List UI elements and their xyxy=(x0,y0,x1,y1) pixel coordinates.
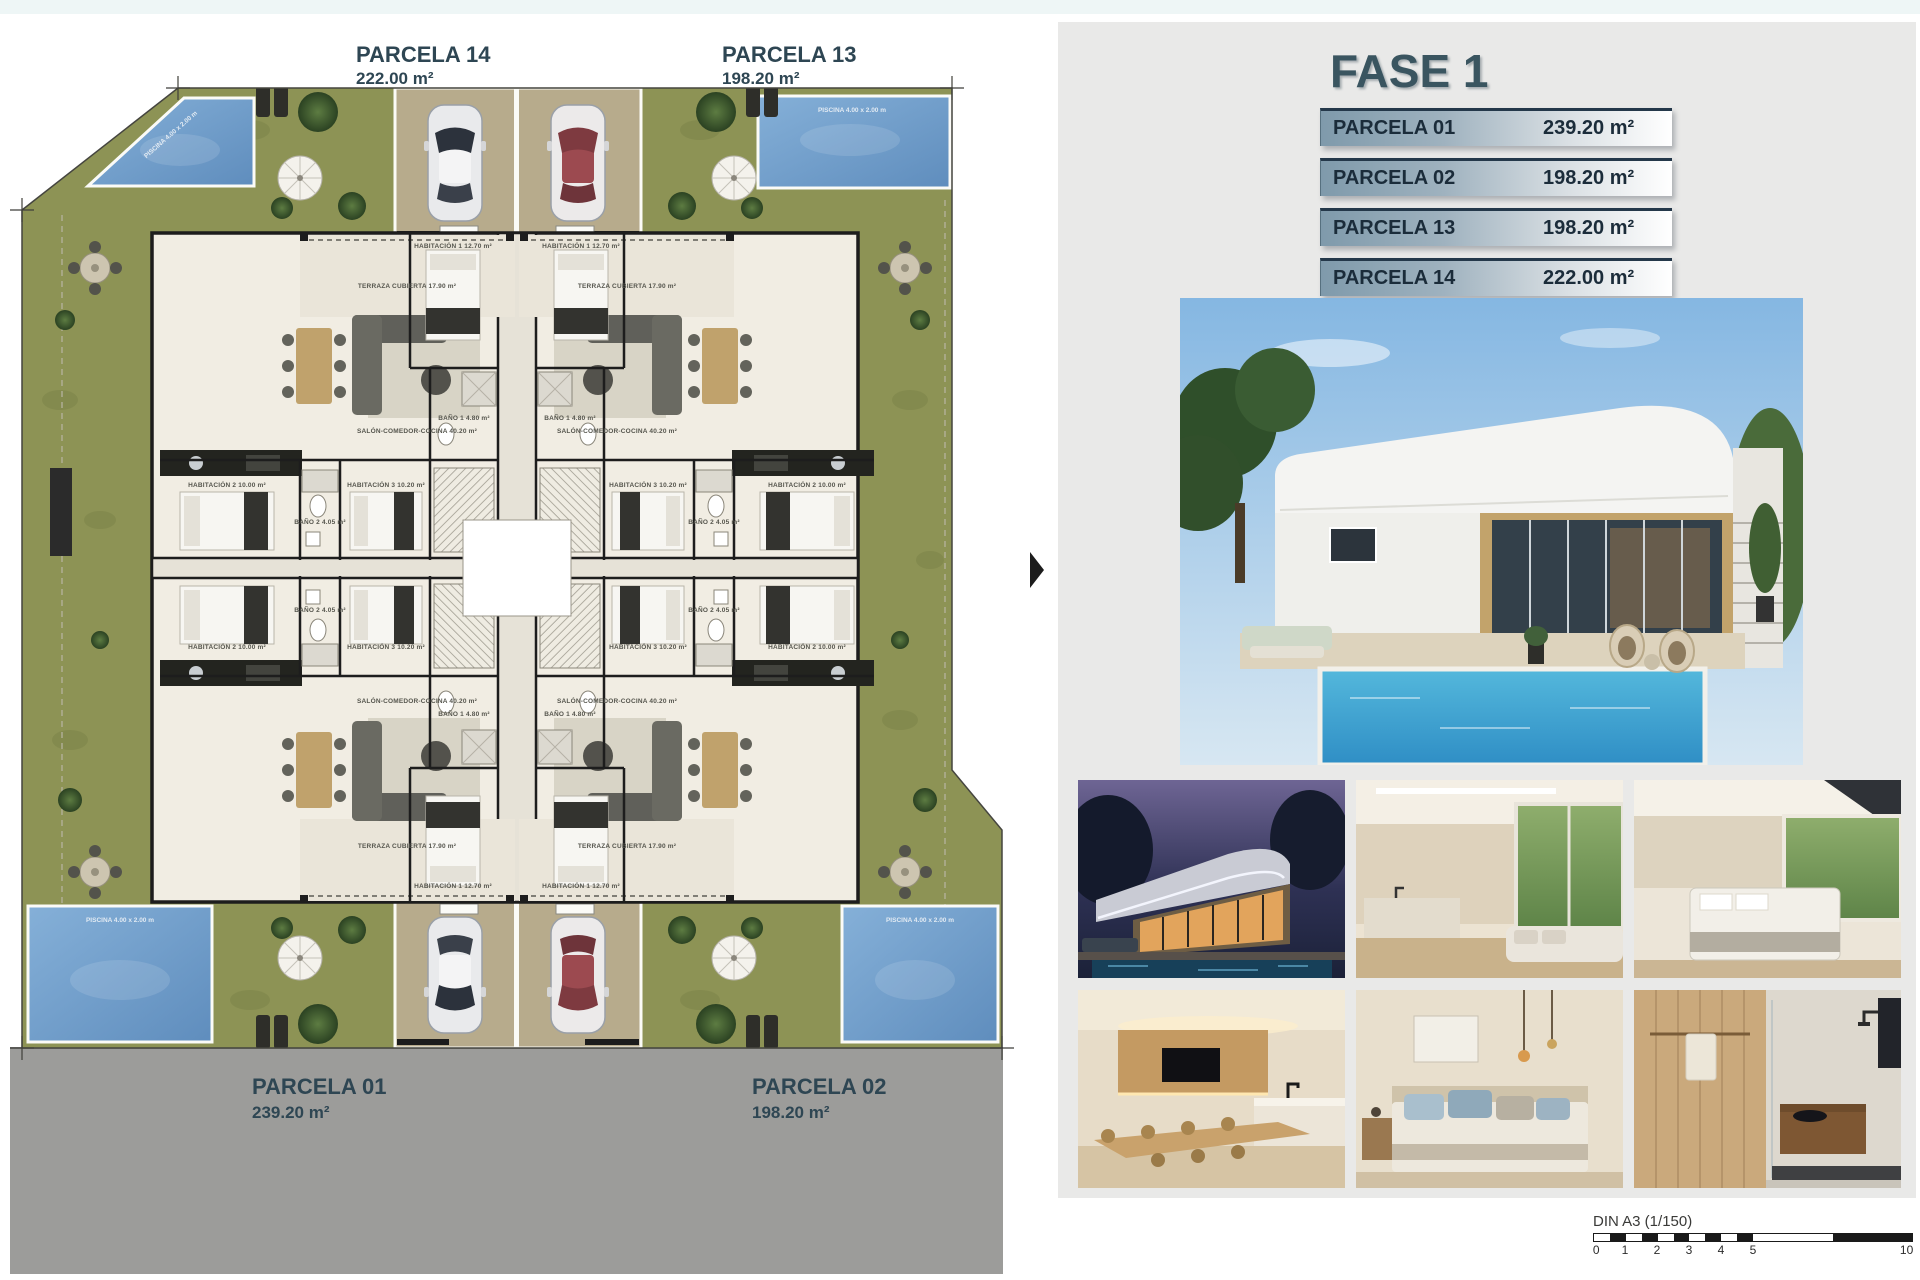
room-label: HABITACIÓN 3 10.20 m² xyxy=(609,642,687,651)
room-label: HABITACIÓN 1 12.70 m² xyxy=(542,241,620,250)
parasol xyxy=(278,156,322,200)
room-label: SALÓN-COMEDOR-COCINA 40.20 m² xyxy=(557,696,678,705)
row-value: 198.20 m² xyxy=(1543,167,1634,190)
central-lightwell xyxy=(463,520,571,616)
room-label: HABITACIÓN 1 12.70 m² xyxy=(414,881,492,890)
table-row: PARCELA 01 239.20 m² xyxy=(1320,108,1672,146)
table-row: PARCELA 02 198.20 m² xyxy=(1320,158,1672,196)
parcel-02-label: PARCELA 02 xyxy=(752,1074,886,1099)
room-label: BAÑO 2 4.05 m² xyxy=(294,605,346,614)
row-label: PARCELA 02 xyxy=(1333,167,1455,190)
room-label: BAÑO 1 4.80 m² xyxy=(544,413,596,422)
room-label: BAÑO 1 4.80 m² xyxy=(544,709,596,718)
room-label: BAÑO 2 4.05 m² xyxy=(688,605,740,614)
scale-tick: 2 xyxy=(1654,1243,1661,1257)
page-title: FASE 1 xyxy=(1330,44,1489,98)
room-label: TERRAZA CUBIERTA 17.90 m² xyxy=(358,843,457,850)
car-top-right xyxy=(547,105,609,221)
row-value: 222.00 m² xyxy=(1543,267,1634,290)
thumb-living-room xyxy=(1356,780,1623,978)
scale-tick: 4 xyxy=(1718,1243,1725,1257)
villa-exterior-photo xyxy=(1180,298,1803,765)
pool-label: PISCINA 4.00 x 2.00 m xyxy=(86,917,154,924)
row-label: PARCELA 13 xyxy=(1333,217,1455,240)
room-label: HABITACIÓN 3 10.20 m² xyxy=(609,480,687,489)
row-value: 198.20 m² xyxy=(1543,217,1634,240)
room-label: HABITACIÓN 2 10.00 m² xyxy=(768,480,846,489)
site-plan: PARCELA 14 222.00 m² PARCELA 13 198.20 m… xyxy=(0,0,1058,1280)
thumb-kitchen-dining xyxy=(1078,990,1345,1188)
row-value: 239.20 m² xyxy=(1543,117,1634,140)
scale-caption: DIN A3 (1/150) xyxy=(1593,1213,1913,1230)
room-label: BAÑO 2 4.05 m² xyxy=(294,517,346,526)
room-label: SALÓN-COMEDOR-COCINA 40.20 m² xyxy=(557,426,678,435)
scale-tick: 3 xyxy=(1686,1243,1693,1257)
site-plan-drawing: PARCELA 14 222.00 m² PARCELA 13 198.20 m… xyxy=(0,0,1058,1280)
parcel-02-area: 198.20 m² xyxy=(752,1103,830,1122)
room-label: HABITACIÓN 2 10.00 m² xyxy=(768,642,846,651)
thumb-night-exterior xyxy=(1078,780,1345,978)
car-bottom-left xyxy=(424,917,486,1033)
room-label: BAÑO 1 4.80 m² xyxy=(438,709,490,718)
scale-bar-graphic xyxy=(1593,1233,1913,1242)
room-label: HABITACIÓN 3 10.20 m² xyxy=(347,480,425,489)
parcel-table: PARCELA 01 239.20 m² PARCELA 02 198.20 m… xyxy=(1320,108,1672,308)
room-label: HABITACIÓN 2 10.00 m² xyxy=(188,480,266,489)
room-label: TERRAZA CUBIERTA 17.90 m² xyxy=(578,843,677,850)
utility-box xyxy=(50,468,72,556)
scale-tick: 0 xyxy=(1593,1243,1600,1257)
room-label: HABITACIÓN 1 12.70 m² xyxy=(542,881,620,890)
pool-label: PISCINA 4.00 x 2.00 m xyxy=(886,917,954,924)
room-label: HABITACIÓN 1 12.70 m² xyxy=(414,241,492,250)
parasol xyxy=(278,936,322,980)
car-top-left xyxy=(424,105,486,221)
room-label: TERRAZA CUBIERTA 17.90 m² xyxy=(358,283,457,290)
row-label: PARCELA 01 xyxy=(1333,117,1455,140)
scale-ticks: 0 1 2 3 4 5 10 xyxy=(1593,1243,1913,1259)
room-label: TERRAZA CUBIERTA 17.90 m² xyxy=(578,283,677,290)
thumb-bedroom-view xyxy=(1634,780,1901,978)
row-label: PARCELA 14 xyxy=(1333,267,1455,290)
table-row: PARCELA 13 198.20 m² xyxy=(1320,208,1672,246)
scale-tick: 10 xyxy=(1900,1243,1913,1257)
room-label: SALÓN-COMEDOR-COCINA 40.20 m² xyxy=(357,426,478,435)
room-label: BAÑO 2 4.05 m² xyxy=(688,517,740,526)
parcel-13-label: PARCELA 13 xyxy=(722,42,856,67)
building xyxy=(152,233,874,903)
thumb-bedroom-blue xyxy=(1356,990,1623,1188)
parcel-14-label: PARCELA 14 xyxy=(356,42,491,67)
thumb-bathroom xyxy=(1634,990,1901,1188)
parasol xyxy=(712,156,756,200)
scale-bar: DIN A3 (1/150) 0 1 2 3 4 5 10 xyxy=(1593,1213,1913,1259)
car-bottom-right xyxy=(547,917,609,1033)
pool-label: PISCINA 4.00 x 2.00 m xyxy=(818,107,886,114)
parcel-01-area: 239.20 m² xyxy=(252,1103,330,1122)
scale-tick: 5 xyxy=(1750,1243,1757,1257)
parasol xyxy=(712,936,756,980)
room-label: SALÓN-COMEDOR-COCINA 40.20 m² xyxy=(357,696,478,705)
room-label: HABITACIÓN 3 10.20 m² xyxy=(347,642,425,651)
room-label: BAÑO 1 4.80 m² xyxy=(438,413,490,422)
scale-tick: 1 xyxy=(1622,1243,1629,1257)
parcel-14-area: 222.00 m² xyxy=(356,69,434,88)
table-row: PARCELA 14 222.00 m² xyxy=(1320,258,1672,296)
info-panel: FASE 1 PARCELA 01 239.20 m² PARCELA 02 1… xyxy=(1058,22,1916,1198)
parcel-01-label: PARCELA 01 xyxy=(252,1074,386,1099)
section-marker xyxy=(1030,552,1044,588)
room-label: HABITACIÓN 2 10.00 m² xyxy=(188,642,266,651)
parcel-13-area: 198.20 m² xyxy=(722,69,800,88)
